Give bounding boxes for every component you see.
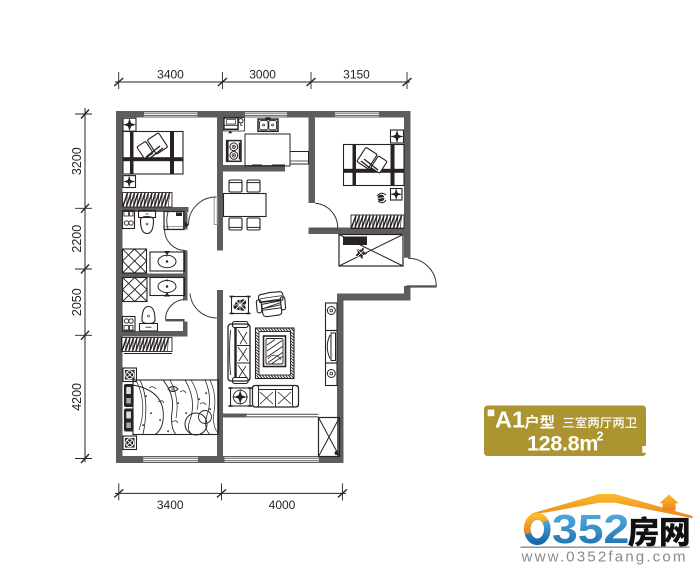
svg-text:4200: 4200 — [70, 383, 84, 411]
svg-text:3400: 3400 — [157, 68, 184, 82]
svg-text:A1: A1 — [495, 407, 525, 433]
svg-text:3200: 3200 — [70, 147, 84, 175]
svg-text:3400: 3400 — [157, 498, 184, 512]
svg-text:4000: 4000 — [269, 498, 296, 512]
svg-text:2050: 2050 — [70, 288, 84, 316]
svg-text:2: 2 — [597, 430, 604, 444]
svg-text:352: 352 — [552, 506, 629, 552]
svg-text:3000: 3000 — [249, 68, 276, 82]
svg-text:128.8m: 128.8m — [527, 432, 598, 456]
svg-text:3150: 3150 — [343, 68, 370, 82]
svg-text:www.0352fang.com: www.0352fang.com — [521, 549, 688, 566]
svg-text:2200: 2200 — [70, 225, 84, 253]
